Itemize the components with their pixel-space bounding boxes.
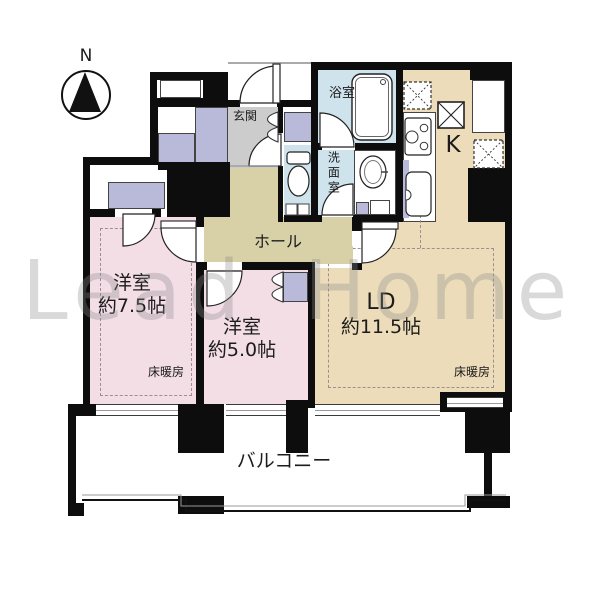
pillar-x-icon: [474, 140, 503, 168]
ld-label: LD 約11.5帖: [326, 290, 436, 339]
room-name: 洋室: [190, 316, 294, 339]
balcony-label: バルコニー: [218, 450, 350, 473]
room-name: 洋室: [80, 272, 184, 295]
kitchen-label: K: [438, 132, 468, 160]
hall-label: ホール: [236, 232, 320, 251]
entrance-label: 玄関: [233, 109, 257, 123]
washbasin-icon: [360, 156, 388, 188]
western-room-75-label: 洋室 約7.5帖: [80, 272, 184, 318]
room-name: LD: [326, 290, 436, 316]
compass-north-label: N: [72, 46, 100, 66]
toilet-icon: [286, 152, 310, 215]
door-swing-icon: [161, 221, 196, 262]
door-swing-icon: [362, 222, 398, 263]
bathtub-icon: [352, 74, 392, 140]
kitchen-sink-icon: [406, 172, 431, 216]
floor-plan: N 玄関 浴室 洗面室 K ホール 洋室 約7.5帖 洋室 約5.0帖 LD 約…: [0, 0, 600, 600]
door-swing-icon: [207, 271, 242, 306]
pillar-x-icon: [404, 82, 431, 109]
door-swing-icon: [240, 64, 280, 103]
north-arrow-icon: [62, 71, 110, 119]
folding-door-icon: [268, 112, 279, 142]
bathroom-label: 浴室: [318, 86, 366, 102]
room-size: 約11.5帖: [326, 316, 436, 339]
washroom-label: 洗面室: [326, 151, 340, 196]
door-swing-icon: [123, 214, 155, 246]
room-size: 約7.5帖: [80, 295, 184, 318]
stove-icon: [405, 118, 431, 155]
western-room-50-label: 洋室 約5.0帖: [190, 316, 294, 362]
room-size: 約5.0帖: [190, 339, 294, 362]
floor-heating-label-75: 床暖房: [122, 365, 184, 379]
pillar-x-icon: [438, 102, 464, 128]
folding-door-icon: [272, 272, 283, 302]
door-swing-icon: [320, 113, 354, 147]
floor-heating-label-ld: 床暖房: [428, 365, 490, 379]
